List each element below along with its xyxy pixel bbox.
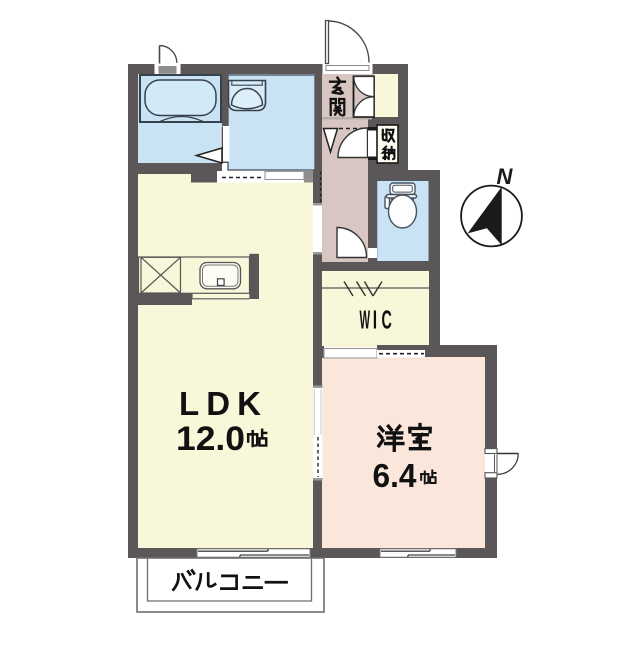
svg-text:LDK: LDK	[179, 385, 261, 422]
svg-text:N: N	[497, 164, 514, 189]
svg-text:6.4: 6.4	[373, 457, 418, 494]
svg-text:C: C	[382, 306, 392, 335]
svg-text:12.0: 12.0	[176, 420, 245, 458]
svg-text:I: I	[373, 305, 377, 334]
svg-text:W: W	[360, 306, 371, 335]
